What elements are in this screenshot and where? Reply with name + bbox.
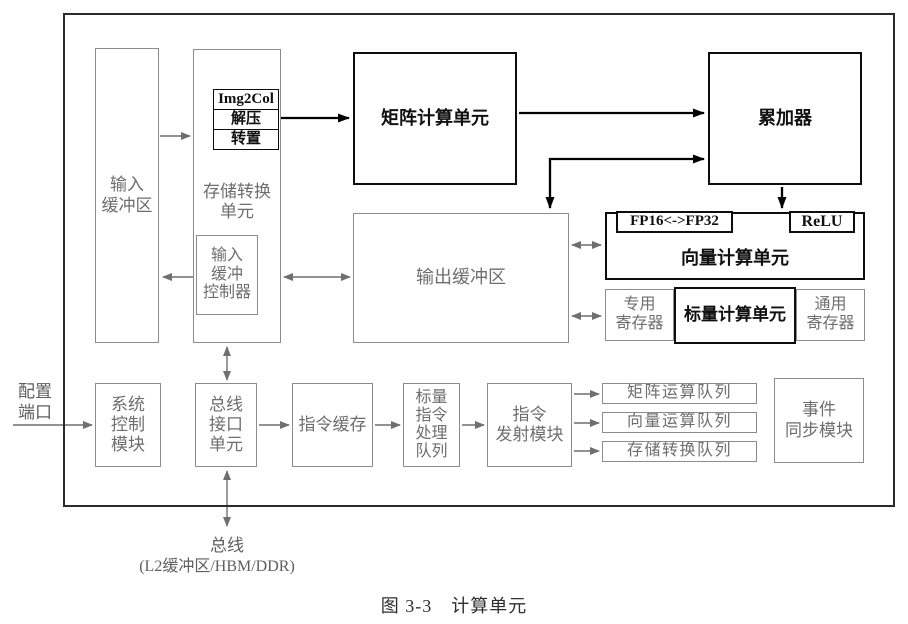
block-instruction-dispatch-module: 指令 发射模块 (487, 383, 572, 467)
block-general-registers: 通用 寄存器 (796, 289, 865, 341)
block-bus-interface-unit: 总线 接口 单元 (195, 383, 257, 467)
storage-conversion-unit-label: 存储转换 单元 (203, 182, 271, 222)
block-matrix-compute-unit: 矩阵计算单元 (353, 52, 517, 185)
block-relu: ReLU (789, 211, 855, 233)
config-port-label: 配置 端口 (8, 381, 62, 424)
bus-label: 总线 (187, 535, 267, 556)
block-matrix-op-queue: 矩阵运算队列 (602, 383, 757, 404)
block-input-buffer: 输入 缓冲区 (95, 48, 159, 343)
block-fp16-fp32-converter: FP16<->FP32 (616, 211, 733, 233)
block-vector-op-queue: 向量运算队列 (602, 412, 757, 433)
block-instruction-cache: 指令缓存 (292, 383, 373, 467)
block-system-control-module: 系统 控制 模块 (95, 383, 161, 467)
block-accumulator: 累加器 (708, 52, 862, 185)
block-img2col: Img2Col (213, 89, 279, 110)
block-scalar-compute-unit: 标量计算单元 (674, 287, 796, 344)
block-output-buffer: 输出缓冲区 (353, 213, 569, 343)
block-special-registers: 专用 寄存器 (605, 289, 674, 341)
block-storage-conversion-queue: 存储转换队列 (602, 441, 757, 462)
bus-detail-label: (L2缓冲区/HBM/DDR) (107, 557, 327, 577)
block-transpose: 转置 (213, 129, 279, 150)
compute-unit-diagram: 输入 缓冲区 存储转换 单元 Img2Col 解压 转置 输入 缓冲 控制器 矩… (0, 0, 908, 624)
block-event-sync-module: 事件 同步模块 (774, 378, 864, 463)
block-scalar-instruction-queue: 标量 指令 处理 队列 (403, 383, 460, 467)
block-input-buffer-controller: 输入 缓冲 控制器 (196, 235, 258, 315)
block-decompress: 解压 (213, 109, 279, 130)
figure-caption: 图 3-3 计算单元 (0, 592, 908, 618)
